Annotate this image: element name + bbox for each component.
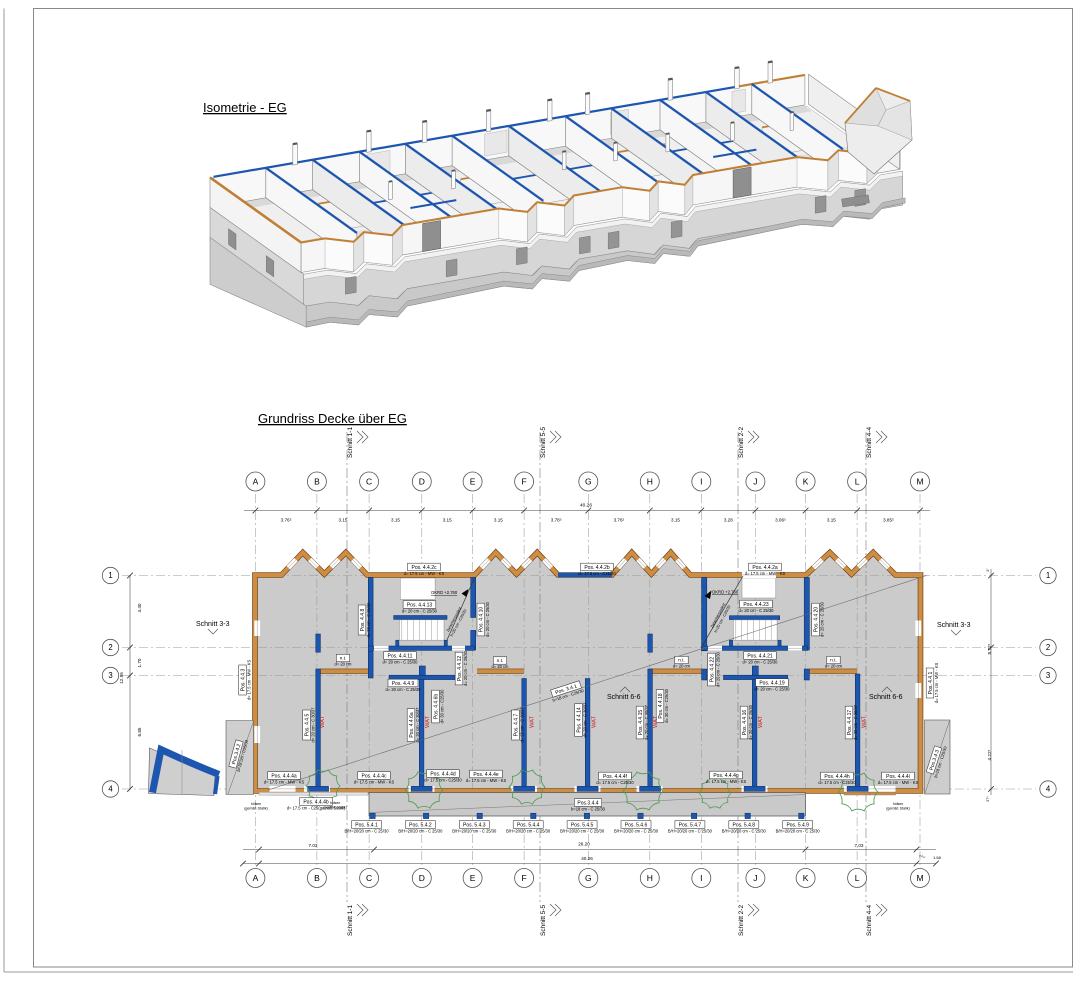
svg-text:3.76⁵: 3.76⁵ bbox=[614, 518, 625, 523]
svg-text:Pos. 4.4.21: Pos. 4.4.21 bbox=[747, 653, 773, 659]
svg-text:Schnitt 1-1: Schnitt 1-1 bbox=[347, 427, 354, 458]
svg-text:Schnitt 6-6: Schnitt 6-6 bbox=[607, 694, 641, 701]
svg-text:Pos. 4.4.5: Pos. 4.4.5 bbox=[304, 714, 310, 737]
svg-text:Grundriss Decke über EG: Grundriss Decke über EG bbox=[258, 411, 407, 426]
svg-text:d= 20 cm - C 30/37: d= 20 cm - C 30/37 bbox=[415, 707, 420, 743]
svg-text:B/H=20/20 cm - C 25/30: B/H=20/20 cm - C 25/30 bbox=[560, 829, 605, 834]
svg-text:Pos. 5.4.9: Pos. 5.4.9 bbox=[786, 822, 809, 828]
svg-text:Pos. 4.4.4i: Pos. 4.4.4i bbox=[886, 774, 910, 780]
svg-text:d= 17.5 cm - MW - KS: d= 17.5 cm - MW - KS bbox=[404, 571, 445, 576]
svg-text:WAT: WAT bbox=[530, 716, 536, 728]
svg-text:d= 20 cm: d= 20 cm bbox=[492, 664, 510, 669]
svg-text:J: J bbox=[753, 477, 757, 487]
svg-text:3: 3 bbox=[108, 671, 112, 680]
svg-text:26.20: 26.20 bbox=[578, 842, 590, 847]
svg-text:hülsen: hülsen bbox=[893, 802, 904, 806]
svg-text:d= 20 cm - C 25/30: d= 20 cm - C 25/30 bbox=[383, 660, 419, 665]
svg-text:3.15: 3.15 bbox=[443, 518, 452, 523]
svg-text:Pos. 4.4.16: Pos. 4.4.16 bbox=[742, 710, 748, 736]
svg-text:C: C bbox=[366, 873, 372, 883]
svg-text:Pos. 4.4.12: Pos. 4.4.12 bbox=[457, 656, 463, 682]
svg-text:WAT: WAT bbox=[862, 716, 868, 728]
svg-text:d= 20 cm - C 25/30: d= 20 cm - C 25/30 bbox=[755, 687, 791, 692]
svg-text:2: 2 bbox=[1046, 643, 1050, 652]
svg-text:F: F bbox=[521, 873, 526, 883]
svg-text:Pos. 4.4.18: Pos. 4.4.18 bbox=[658, 693, 664, 719]
svg-text:4.40: 4.40 bbox=[137, 603, 142, 612]
svg-text:4: 4 bbox=[108, 785, 113, 794]
svg-text:12.95: 12.95 bbox=[119, 672, 124, 684]
svg-text:B: B bbox=[314, 477, 320, 487]
svg-text:Schnitt 4-4: Schnitt 4-4 bbox=[866, 905, 873, 936]
svg-text:d= 20 cm - C 30/37: d= 20 cm - C 30/37 bbox=[853, 704, 858, 740]
svg-text:B/H=20/20 cm - C 25/30: B/H=20/20 cm - C 25/30 bbox=[668, 829, 713, 834]
svg-text:Pos.3.4.4: Pos.3.4.4 bbox=[577, 800, 598, 806]
svg-text:Pos. 4.4.2a: Pos. 4.4.2a bbox=[752, 565, 778, 571]
svg-text:d= 20 cm - C 30/37: d= 20 cm - C 30/37 bbox=[644, 704, 649, 740]
svg-text:2: 2 bbox=[108, 643, 112, 652]
svg-text:WAT: WAT bbox=[592, 716, 598, 728]
svg-text:d= 17.5 cm - MW - KS: d= 17.5 cm - MW - KS bbox=[354, 780, 395, 785]
svg-text:B/H=20/20 cm - C 25/30: B/H=20/20 cm - C 25/30 bbox=[506, 829, 551, 834]
svg-text:M: M bbox=[916, 873, 923, 883]
svg-text:40.26: 40.26 bbox=[581, 856, 593, 861]
svg-text:C: C bbox=[366, 477, 372, 487]
svg-text:3: 3 bbox=[1046, 671, 1050, 680]
svg-text:d= 17.5 cm - MW - KS: d= 17.5 cm - MW - KS bbox=[466, 778, 507, 783]
svg-text:Pos. 5.4.2: Pos. 5.4.2 bbox=[409, 822, 432, 828]
svg-text:K: K bbox=[803, 477, 809, 487]
svg-text:Pos. 4.4.22: Pos. 4.4.22 bbox=[709, 657, 715, 683]
svg-text:d= 20 cm - C 30/37: d= 20 cm - C 30/37 bbox=[311, 707, 316, 743]
svg-text:4: 4 bbox=[1046, 785, 1051, 794]
svg-text:7¹/₁₂: 7¹/₁₂ bbox=[919, 855, 926, 859]
svg-text:Schnitt 6-6: Schnitt 6-6 bbox=[869, 694, 903, 701]
svg-text:L: L bbox=[855, 873, 860, 883]
svg-text:d= 17.5 cm - MW - KS: d= 17.5 cm - MW - KS bbox=[934, 663, 939, 704]
svg-text:D: D bbox=[419, 873, 425, 883]
svg-text:I: I bbox=[700, 873, 702, 883]
svg-text:d= 20 cm - C 25/30: d= 20 cm - C 25/30 bbox=[386, 687, 422, 692]
svg-text:B: B bbox=[314, 873, 320, 883]
svg-text:d= 20 cm - C 25/30: d= 20 cm - C 25/30 bbox=[716, 651, 721, 687]
svg-text:G: G bbox=[585, 477, 592, 487]
svg-text:3.15: 3.15 bbox=[339, 518, 348, 523]
svg-text:H: H bbox=[647, 873, 653, 883]
svg-text:d= 20 cm - C 30/37: d= 20 cm - C 30/37 bbox=[520, 707, 525, 743]
svg-text:(gemäß Statik): (gemäß Statik) bbox=[886, 806, 910, 810]
svg-text:d= 17.5 cm - C25/30: d= 17.5 cm - C25/30 bbox=[818, 780, 856, 785]
svg-text:d= 30 cm - C25/30: d= 30 cm - C25/30 bbox=[440, 689, 445, 724]
svg-text:hülsen: hülsen bbox=[251, 802, 262, 806]
svg-text:Pos. 4.4.4e: Pos. 4.4.4e bbox=[473, 772, 499, 778]
svg-text:3.15: 3.15 bbox=[827, 518, 836, 523]
svg-text:Pos. 4.4.4f: Pos. 4.4.4f bbox=[603, 774, 628, 780]
svg-text:A: A bbox=[253, 873, 259, 883]
svg-text:d= 20 cm - C 25/30: d= 20 cm - C 25/30 bbox=[739, 608, 775, 613]
svg-text:d= 20 cm - C 25/30: d= 20 cm - C 25/30 bbox=[485, 601, 490, 637]
svg-text:Pos. 4.4.4d: Pos. 4.4.4d bbox=[430, 771, 456, 777]
svg-text:3.15: 3.15 bbox=[391, 518, 400, 523]
svg-text:Pos. 4.4.7: Pos. 4.4.7 bbox=[513, 714, 519, 737]
svg-text:WAT: WAT bbox=[758, 716, 764, 728]
svg-text:d= 30 cm - C25/30: d= 30 cm - C25/30 bbox=[664, 688, 669, 723]
svg-text:Pos. 4.4.9: Pos. 4.4.9 bbox=[392, 681, 415, 687]
svg-text:3.78⁵: 3.78⁵ bbox=[551, 518, 562, 523]
svg-text:E: E bbox=[470, 477, 476, 487]
svg-text:27⁵: 27⁵ bbox=[986, 796, 990, 802]
svg-text:7.03: 7.03 bbox=[309, 843, 318, 848]
svg-text:d= 20 cm - C 25/30: d= 20 cm - C 25/30 bbox=[366, 602, 371, 638]
svg-text:J: J bbox=[753, 873, 757, 883]
svg-text:d= 20 cm - C 30/37: d= 20 cm - C 30/37 bbox=[583, 702, 588, 738]
svg-text:d= 20 cm - C 25/30: d= 20 cm - C 25/30 bbox=[820, 601, 825, 637]
svg-text:E: E bbox=[470, 873, 476, 883]
svg-text:d= 20 cm: d= 20 cm bbox=[335, 662, 353, 667]
svg-text:Schnitt 1-1: Schnitt 1-1 bbox=[347, 905, 354, 936]
svg-text:Schnitt 5-5: Schnitt 5-5 bbox=[540, 905, 547, 936]
svg-text:Schnitt 5-5: Schnitt 5-5 bbox=[540, 427, 547, 458]
svg-text:Pos. 5.4.4: Pos. 5.4.4 bbox=[517, 822, 540, 828]
svg-text:M: M bbox=[916, 477, 923, 487]
svg-text:d= 17.5 cm - C25/30: d= 17.5 cm - C25/30 bbox=[424, 778, 462, 783]
svg-text:1.70: 1.70 bbox=[137, 658, 142, 667]
svg-text:Schnitt 4-4: Schnitt 4-4 bbox=[866, 427, 873, 458]
svg-text:d= 17.5 cm - C25/30: d= 17.5 cm - C25/30 bbox=[596, 780, 634, 785]
svg-text:WAT: WAT bbox=[653, 716, 659, 728]
svg-text:3.06⁵: 3.06⁵ bbox=[775, 518, 786, 523]
svg-text:Pos. 5.4.3: Pos. 5.4.3 bbox=[463, 822, 486, 828]
svg-text:Pos. 4.4.4a: Pos. 4.4.4a bbox=[271, 773, 297, 779]
svg-text:L: L bbox=[855, 477, 860, 487]
svg-text:hülsen: hülsen bbox=[330, 801, 341, 805]
svg-text:Pos. 5.4.5: Pos. 5.4.5 bbox=[571, 822, 594, 828]
svg-text:d= 17.5 cm - MW - KS: d= 17.5 cm - MW - KS bbox=[745, 571, 786, 576]
svg-text:OKRD +2.760: OKRD +2.760 bbox=[712, 590, 739, 595]
svg-text:d= 17.5 cm - MW - KS: d= 17.5 cm - MW - KS bbox=[247, 660, 252, 701]
svg-text:Schnitt 2-2: Schnitt 2-2 bbox=[738, 427, 745, 458]
svg-text:d= 20 cm: d= 20 cm bbox=[673, 664, 691, 669]
svg-text:B/H=20/20 cm - C 25/30: B/H=20/20 cm - C 25/30 bbox=[452, 829, 497, 834]
svg-text:4.22⁵: 4.22⁵ bbox=[987, 749, 992, 760]
svg-text:Schnitt 3-3: Schnitt 3-3 bbox=[196, 621, 230, 628]
svg-text:Pos. 5.4.1: Pos. 5.4.1 bbox=[355, 822, 378, 828]
svg-text:A: A bbox=[253, 477, 259, 487]
svg-text:3.15: 3.15 bbox=[494, 518, 503, 523]
svg-text:d= 20 cm - C 25/30: d= 20 cm - C 25/30 bbox=[402, 609, 438, 614]
svg-text:D: D bbox=[419, 477, 425, 487]
svg-text:d= 17.5 cm - MW - KS: d= 17.5 cm - MW - KS bbox=[264, 780, 305, 785]
svg-text:Pos. 5.4.8: Pos. 5.4.8 bbox=[733, 822, 756, 828]
svg-text:Pos. 4.4.19: Pos. 4.4.19 bbox=[759, 680, 785, 686]
svg-text:Pos. 4.4.11: Pos. 4.4.11 bbox=[388, 653, 413, 659]
svg-text:(gemäß Statik): (gemäß Statik) bbox=[323, 805, 347, 809]
svg-text:WAT: WAT bbox=[425, 716, 431, 728]
svg-text:Pos. 4.4.4h: Pos. 4.4.4h bbox=[824, 774, 850, 780]
svg-text:Pos. 4.4.2b: Pos. 4.4.2b bbox=[584, 565, 610, 571]
svg-text:Isometrie - EG: Isometrie - EG bbox=[203, 100, 287, 115]
svg-text:3.76⁵: 3.76⁵ bbox=[281, 518, 292, 523]
svg-text:Pos. 4.4.23: Pos. 4.4.23 bbox=[743, 602, 769, 608]
svg-text:K: K bbox=[803, 873, 809, 883]
svg-text:Schnitt 3-3: Schnitt 3-3 bbox=[937, 622, 971, 629]
svg-text:1.58: 1.58 bbox=[933, 855, 942, 860]
svg-text:d= 20 cm - C 25/30: d= 20 cm - C 25/30 bbox=[463, 650, 468, 686]
svg-text:Pos. 4.4.20: Pos. 4.4.20 bbox=[813, 607, 819, 633]
svg-text:Pos. 4.4.13: Pos. 4.4.13 bbox=[407, 602, 433, 608]
svg-text:Pos. 4.4.10: Pos. 4.4.10 bbox=[479, 607, 485, 633]
svg-text:OKRD +2.760: OKRD +2.760 bbox=[431, 590, 458, 595]
svg-text:40.26: 40.26 bbox=[580, 503, 592, 509]
svg-text:3.28: 3.28 bbox=[724, 518, 733, 523]
svg-text:Schnitt 2-2: Schnitt 2-2 bbox=[738, 905, 745, 936]
svg-text:6.85: 6.85 bbox=[137, 727, 142, 736]
svg-text:Pos. 4.4.8: Pos. 4.4.8 bbox=[360, 609, 366, 632]
svg-text:Pos. 4.4.3: Pos. 4.4.3 bbox=[240, 669, 246, 692]
svg-text:3.85⁵: 3.85⁵ bbox=[883, 518, 894, 523]
svg-text:3.15: 3.15 bbox=[671, 518, 680, 523]
svg-text:Pos. 4.4.4c: Pos. 4.4.4c bbox=[361, 773, 387, 779]
svg-text:B/H=20/20 cm - C 25/30: B/H=20/20 cm - C 25/30 bbox=[398, 829, 443, 834]
svg-text:Pos. 4.4.6a: Pos. 4.4.6a bbox=[409, 712, 415, 738]
svg-text:Pos. 4.4.6b: Pos. 4.4.6b bbox=[433, 694, 439, 720]
svg-text:1: 1 bbox=[108, 571, 112, 580]
svg-text:Pos. 4.4.15: Pos. 4.4.15 bbox=[638, 710, 644, 736]
svg-text:1: 1 bbox=[1046, 571, 1050, 580]
svg-text:B/H=20/20 cm - C 25/30: B/H=20/20 cm - C 25/30 bbox=[722, 829, 767, 834]
svg-text:Pos. 5.4.6: Pos. 5.4.6 bbox=[625, 822, 648, 828]
svg-text:B/H=20/20 cm - C 25/30: B/H=20/20 cm - C 25/30 bbox=[776, 829, 821, 834]
svg-text:B/H=20/20 cm - C 25/30: B/H=20/20 cm - C 25/30 bbox=[614, 829, 659, 834]
svg-text:d= 20 cm - C 25/30: d= 20 cm - C 25/30 bbox=[743, 660, 779, 665]
svg-text:G: G bbox=[585, 873, 592, 883]
svg-text:d= 17.5 cm - MW - KS: d= 17.5 cm - MW - KS bbox=[878, 780, 919, 785]
svg-text:F: F bbox=[521, 477, 526, 487]
svg-text:Pos. 4.4.17: Pos. 4.4.17 bbox=[847, 710, 853, 736]
svg-text:Pos. 4.4.2c: Pos. 4.4.2c bbox=[411, 565, 437, 571]
svg-text:d= 20 cm - C 25/30: d= 20 cm - C 25/30 bbox=[748, 704, 753, 740]
svg-text:7.03: 7.03 bbox=[855, 843, 864, 848]
svg-text:WAT: WAT bbox=[320, 716, 326, 728]
svg-text:H: H bbox=[647, 477, 653, 487]
svg-text:(gemäß Statik): (gemäß Statik) bbox=[244, 806, 268, 810]
svg-text:Pos. 4.4.1: Pos. 4.4.1 bbox=[928, 672, 934, 695]
svg-text:I: I bbox=[700, 477, 702, 487]
svg-text:Pos. 4.4.4b: Pos. 4.4.4b bbox=[303, 799, 329, 805]
svg-text:Pos. 4.4.14: Pos. 4.4.14 bbox=[576, 707, 582, 733]
svg-text:d= 17.5 cm - C25/30: d= 17.5 cm - C25/30 bbox=[578, 571, 616, 576]
svg-text:d= 20 cm: d= 20 cm bbox=[825, 664, 843, 669]
svg-text:8.72⁵: 8.72⁵ bbox=[987, 643, 992, 654]
svg-text:Pos. 5.4.7: Pos. 5.4.7 bbox=[679, 822, 702, 828]
svg-text:b=18 cm - C 25/30: b=18 cm - C 25/30 bbox=[571, 807, 606, 812]
svg-text:Pos. 4.4.4g: Pos. 4.4.4g bbox=[713, 773, 739, 779]
svg-text:d= 17.5 cm - MW - KS: d= 17.5 cm - MW - KS bbox=[706, 779, 747, 784]
svg-text:B/H=20/20 cm - C 25/30: B/H=20/20 cm - C 25/30 bbox=[344, 829, 389, 834]
